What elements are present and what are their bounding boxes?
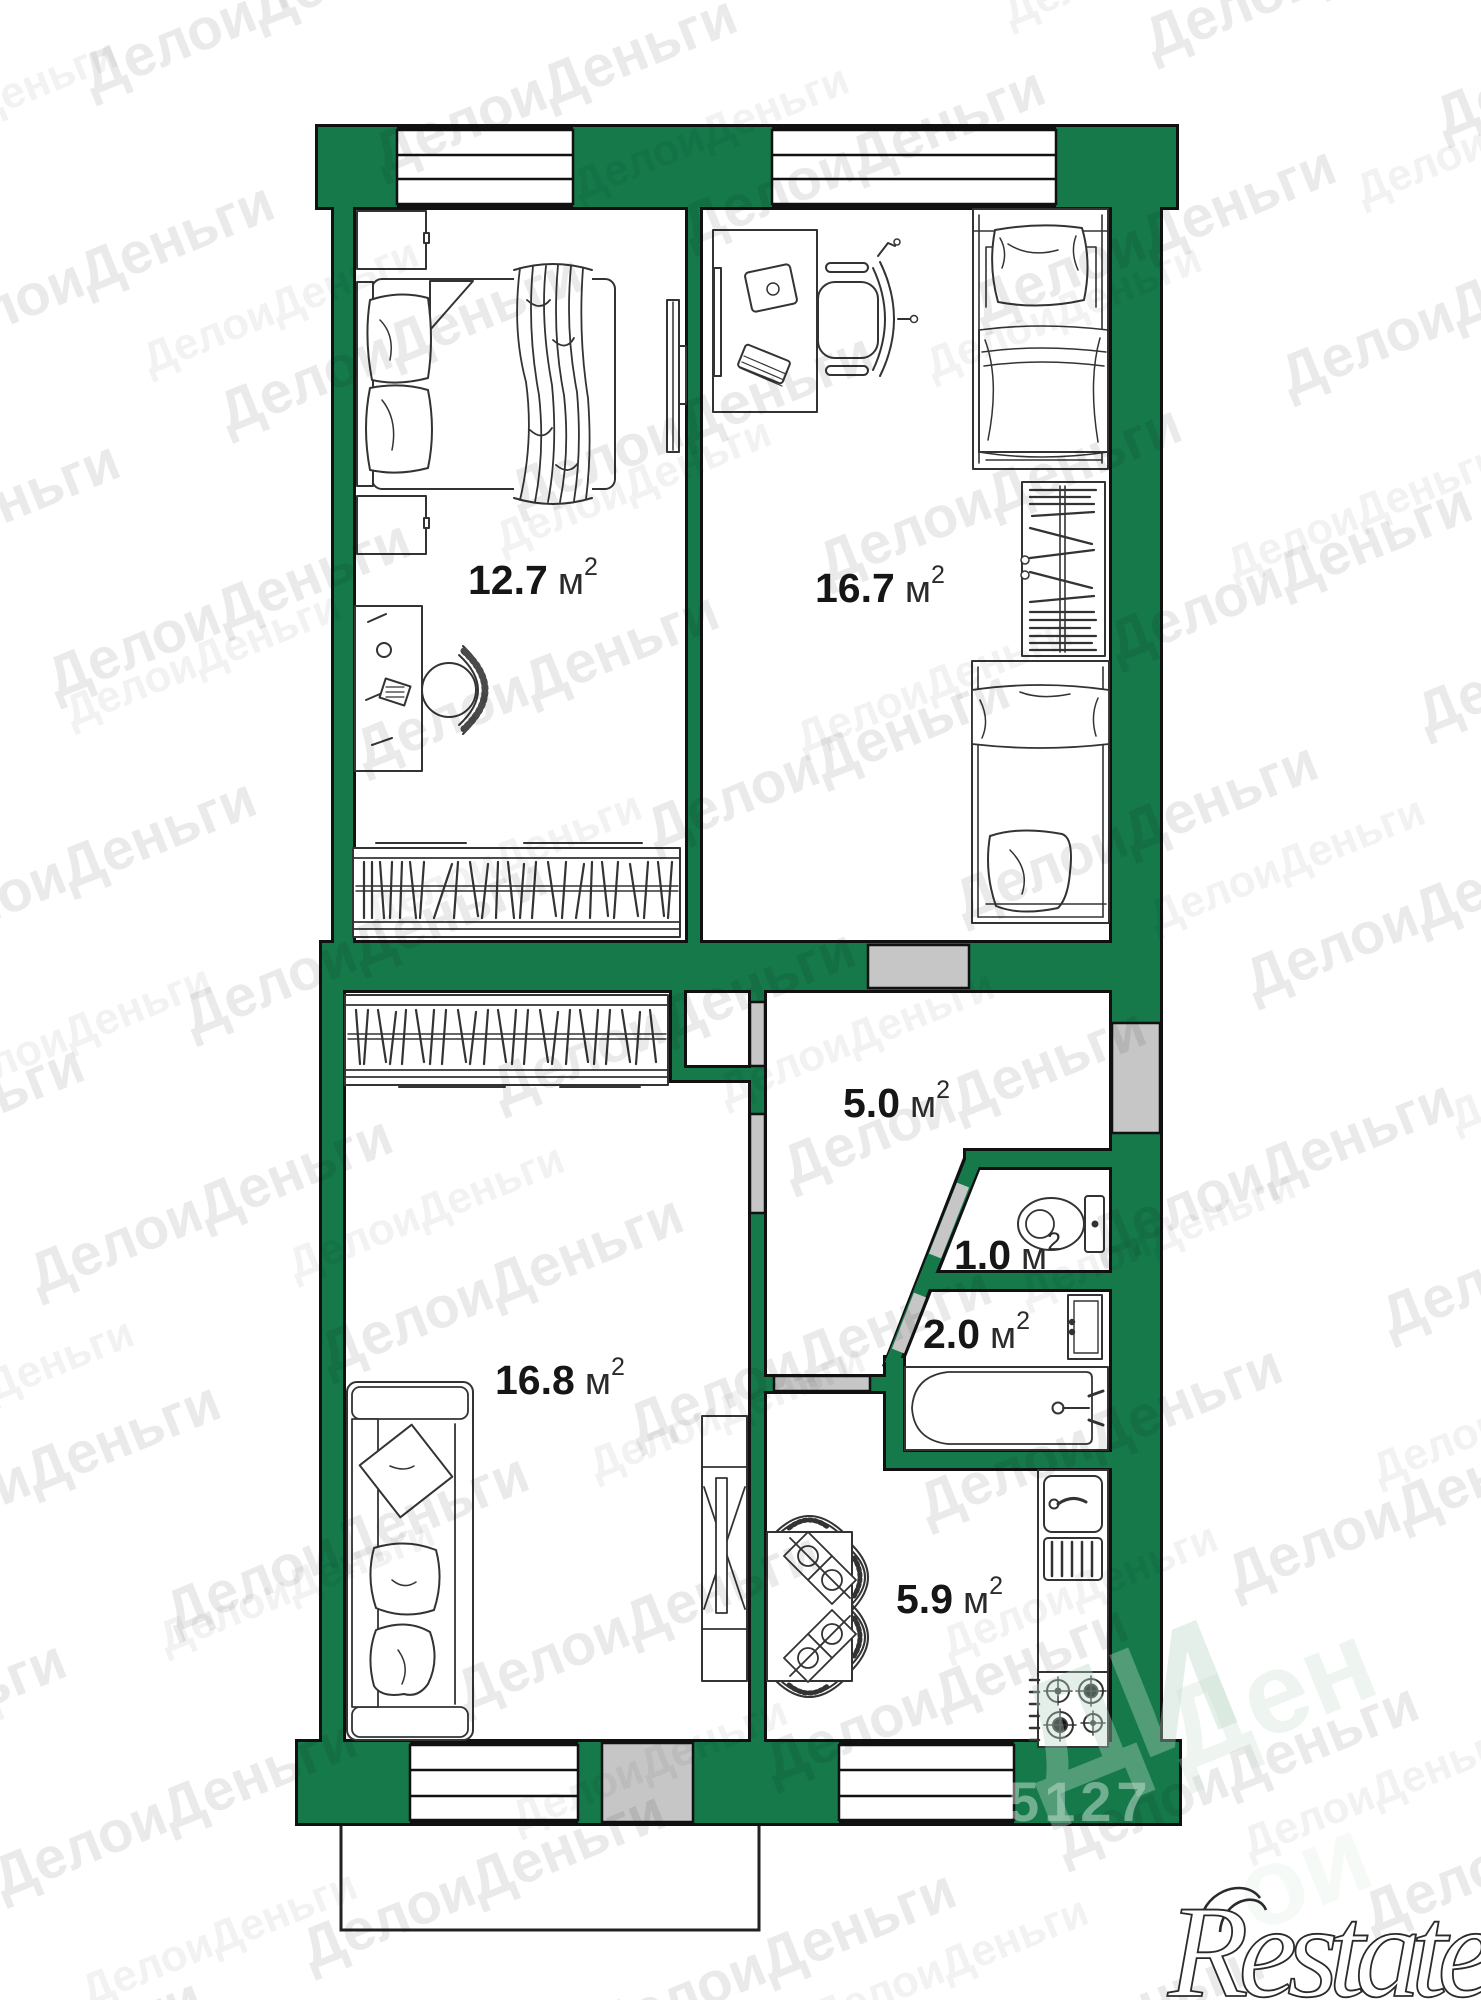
svg-text:16.7м2: 16.7м2 <box>815 561 945 611</box>
svg-text:2.0м2: 2.0м2 <box>923 1307 1030 1357</box>
svg-text:Restate: Restate <box>1167 1878 1481 2000</box>
svg-text:12.7м2: 12.7м2 <box>468 553 598 603</box>
svg-text:5.0м2: 5.0м2 <box>843 1076 950 1126</box>
svg-text:1.0м2: 1.0м2 <box>954 1228 1061 1278</box>
svg-text:5.9м2: 5.9м2 <box>896 1572 1003 1622</box>
svg-text:16.8м2: 16.8м2 <box>495 1353 625 1403</box>
